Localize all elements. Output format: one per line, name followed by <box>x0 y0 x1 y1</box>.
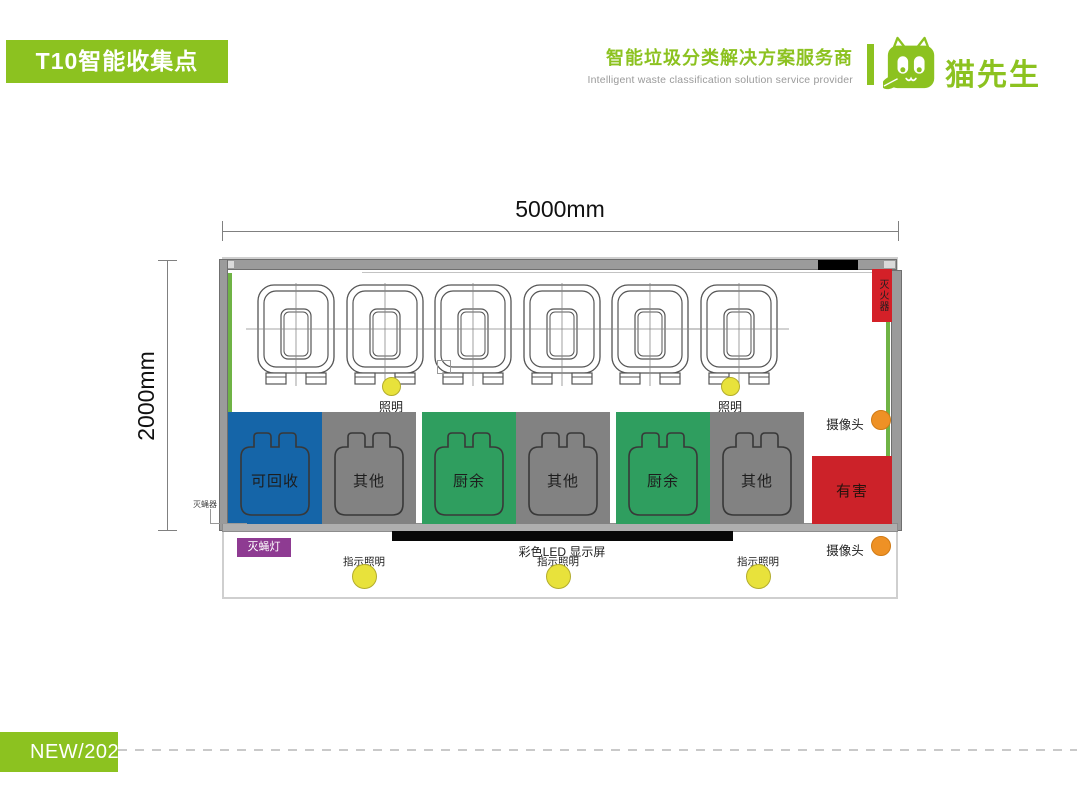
bin-other-1-label: 其他 <box>322 470 416 491</box>
dimension-width-tick-left <box>222 221 223 241</box>
bin-other-3: 其他 <box>710 412 804 524</box>
footer-year-badge: NEW/2022 <box>0 732 118 772</box>
dimension-height-tick-top <box>158 260 177 261</box>
dimension-width-label: 5000mm <box>430 196 690 223</box>
fly-killer-leader-vertical <box>210 509 211 524</box>
dimension-height-line <box>167 260 168 531</box>
fly-lamp-badge: 灭蝇灯 <box>237 538 291 557</box>
plan-detail-square <box>437 360 451 374</box>
wall-top-notch-right <box>884 261 895 268</box>
bin-outline-5 <box>600 283 700 395</box>
bin-recyclable-label: 可回收 <box>228 470 322 491</box>
fly-killer-device-label: 灭蝇器 <box>193 499 217 510</box>
interior-rail-line <box>362 272 884 273</box>
bin-hazard: 有害 <box>812 456 892 524</box>
bin-kitchen-1: 厨余 <box>422 412 516 524</box>
page-title-badge: T10智能收集点 <box>6 40 228 83</box>
bin-hazard-label: 有害 <box>836 480 868 501</box>
bin-other-1: 其他 <box>322 412 416 524</box>
indicator-light-1-icon <box>352 564 377 589</box>
bin-kitchen-1-label: 厨余 <box>422 470 516 491</box>
bin-other-2: 其他 <box>516 412 610 524</box>
indicator-light-2-icon <box>546 564 571 589</box>
bin-outline-4 <box>512 283 612 395</box>
camera-top-label: 摄像头 <box>823 414 867 433</box>
bin-kitchen-2-label: 厨余 <box>616 470 710 491</box>
brand-name: 猫先生 <box>945 50 1041 94</box>
ceiling-light-2-icon <box>721 377 740 396</box>
bin-outline-6 <box>689 283 789 395</box>
led-display-bar <box>392 531 733 541</box>
bin-outline-3 <box>423 283 523 395</box>
wall-top <box>223 259 897 270</box>
footer-dashed-line <box>118 749 1077 751</box>
ceiling-device-black <box>818 260 858 270</box>
dimension-height-tick-bottom <box>158 530 177 531</box>
fly-killer-leader-horizontal <box>210 523 247 524</box>
dimension-height-label: 2000mm <box>133 346 157 446</box>
ceiling-light-1-icon <box>382 377 401 396</box>
camera-bottom-icon <box>871 536 891 556</box>
page: T10智能收集点 智能垃圾分类解决方案服务商 Intelligent waste… <box>0 0 1077 793</box>
company-tagline: 智能垃圾分类解决方案服务商 Intelligent waste classifi… <box>588 44 853 86</box>
dimension-width-line <box>222 231 899 232</box>
tagline-chinese: 智能垃圾分类解决方案服务商 <box>588 44 853 70</box>
dimension-width-tick-right <box>898 221 899 241</box>
camera-top-icon <box>871 410 891 430</box>
bin-other-2-label: 其他 <box>516 470 610 491</box>
wall-left <box>219 259 228 531</box>
tagline-english: Intelligent waste classification solutio… <box>588 74 853 86</box>
header-divider-bar <box>867 44 874 85</box>
cat-logo-icon <box>883 36 941 92</box>
bin-other-3-label: 其他 <box>710 470 804 491</box>
camera-bottom-label: 摄像头 <box>823 540 867 559</box>
bin-outline-1 <box>246 283 346 395</box>
bin-kitchen-2: 厨余 <box>616 412 710 524</box>
wall-right <box>891 270 902 531</box>
bin-recyclable: 可回收 <box>228 412 322 524</box>
fire-extinguisher-badge: 灭火器 <box>872 269 892 322</box>
indicator-light-3-icon <box>746 564 771 589</box>
